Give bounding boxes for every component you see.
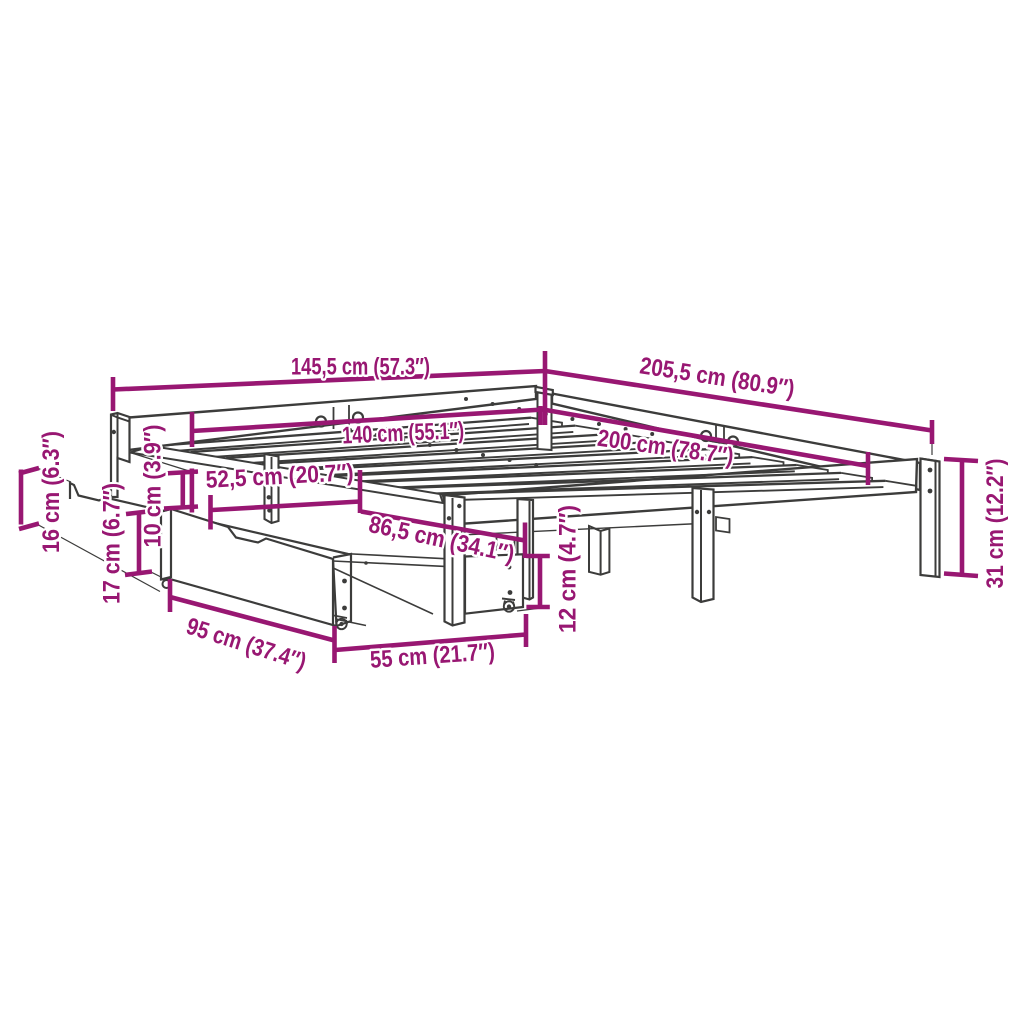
svg-text:12 cm (4.7″): 12 cm (4.7″) — [555, 505, 582, 633]
svg-text:145,5 cm (57.3″): 145,5 cm (57.3″) — [291, 354, 430, 381]
svg-text:140 cm (55.1″): 140 cm (55.1″) — [342, 417, 465, 449]
svg-text:17 cm (6.7″): 17 cm (6.7″) — [99, 483, 126, 604]
svg-text:16 cm (6.3″): 16 cm (6.3″) — [38, 431, 65, 553]
svg-text:10 cm (3.9″): 10 cm (3.9″) — [140, 425, 167, 548]
svg-text:31 cm (12.2″): 31 cm (12.2″) — [982, 459, 1009, 589]
